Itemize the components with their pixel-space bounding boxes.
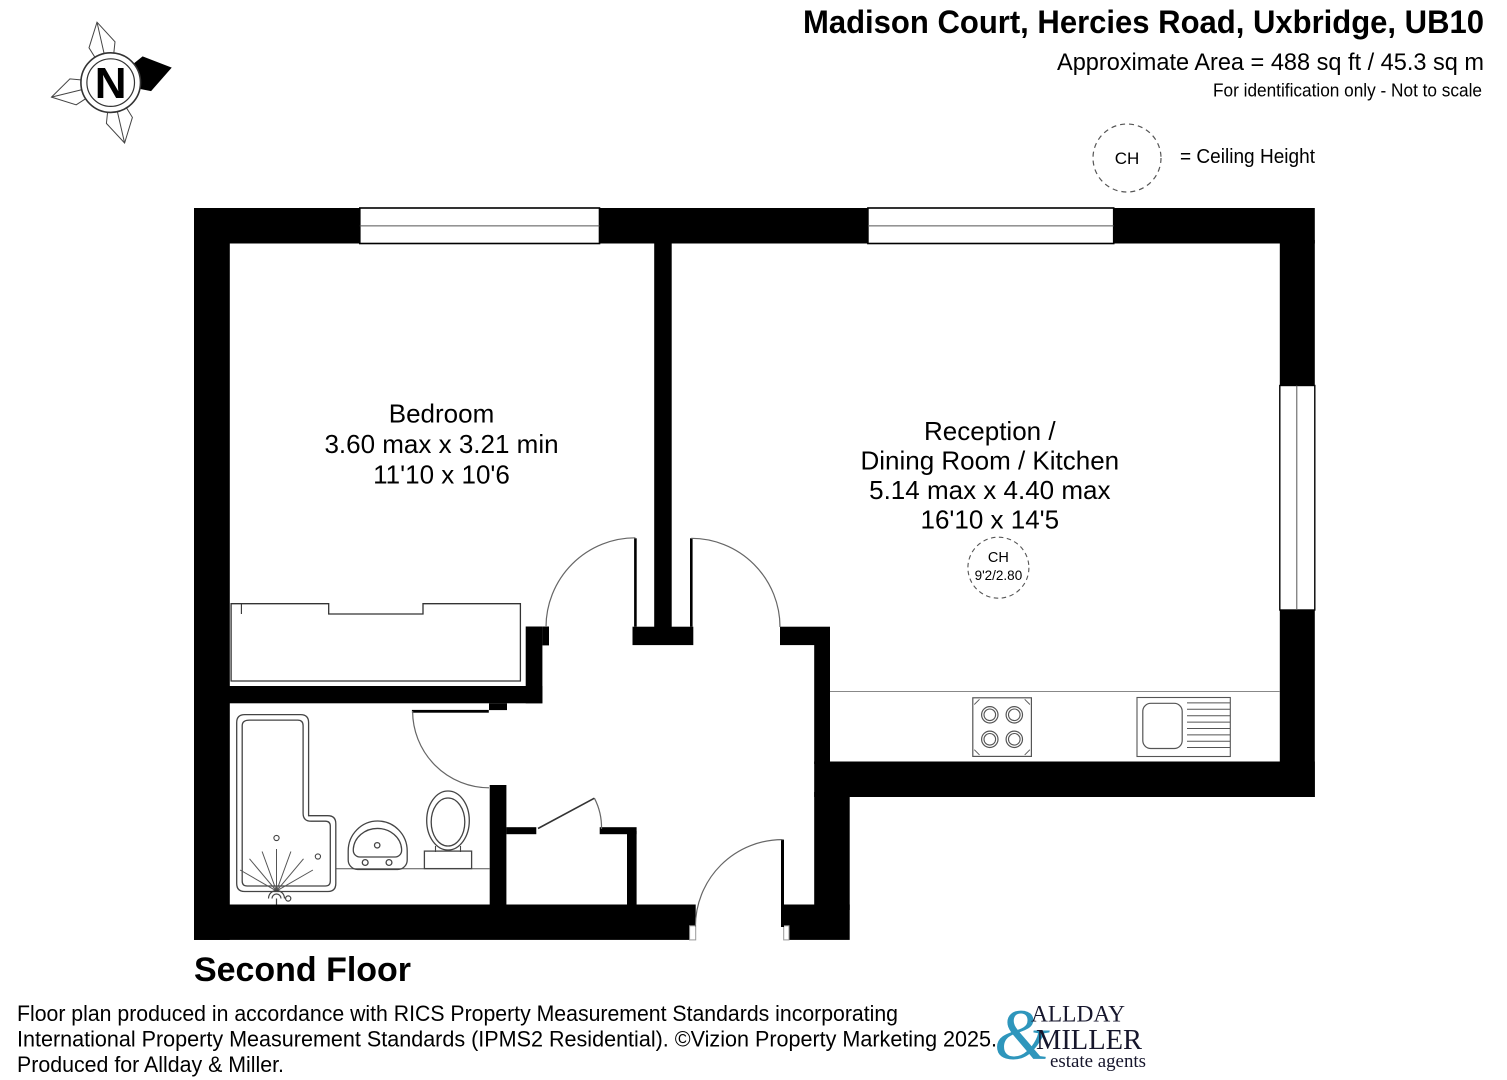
svg-text:11'10 x 10'6: 11'10 x 10'6	[373, 460, 510, 490]
svg-text:estate agents: estate agents	[1050, 1051, 1146, 1072]
svg-text:3.60 max x 3.21 min: 3.60 max x 3.21 min	[324, 429, 558, 459]
svg-text:Bedroom: Bedroom	[389, 399, 495, 429]
svg-text:Produced for Allday & Miller.: Produced for Allday & Miller.	[17, 1052, 284, 1077]
svg-text:CH: CH	[1115, 149, 1140, 168]
svg-text:Dining Room / Kitchen: Dining Room / Kitchen	[860, 446, 1119, 476]
svg-text:Reception /: Reception /	[924, 416, 1056, 446]
svg-text:International Property Measure: International Property Measurement Stand…	[17, 1027, 997, 1052]
svg-text:5.14 max x 4.40 max: 5.14 max x 4.40 max	[869, 475, 1110, 505]
svg-text:ALLDAY: ALLDAY	[1031, 1002, 1125, 1027]
svg-text:= Ceiling Height: = Ceiling Height	[1180, 146, 1315, 168]
svg-text:For identification only - Not: For identification only - Not to scale	[1213, 80, 1482, 101]
svg-text:Madison Court, Hercies Road, U: Madison Court, Hercies Road, Uxbridge, U…	[803, 4, 1484, 40]
svg-text:Approximate Area = 488 sq ft /: Approximate Area = 488 sq ft / 45.3 sq m	[1057, 49, 1484, 76]
svg-text:CH: CH	[988, 550, 1009, 566]
svg-text:Second Floor: Second Floor	[194, 951, 411, 989]
svg-text:N: N	[95, 59, 127, 108]
svg-text:Floor plan produced in accorda: Floor plan produced in accordance with R…	[17, 1001, 898, 1026]
svg-text:16'10 x 14'5: 16'10 x 14'5	[920, 505, 1059, 535]
svg-text:9'2/2.80: 9'2/2.80	[975, 568, 1023, 583]
